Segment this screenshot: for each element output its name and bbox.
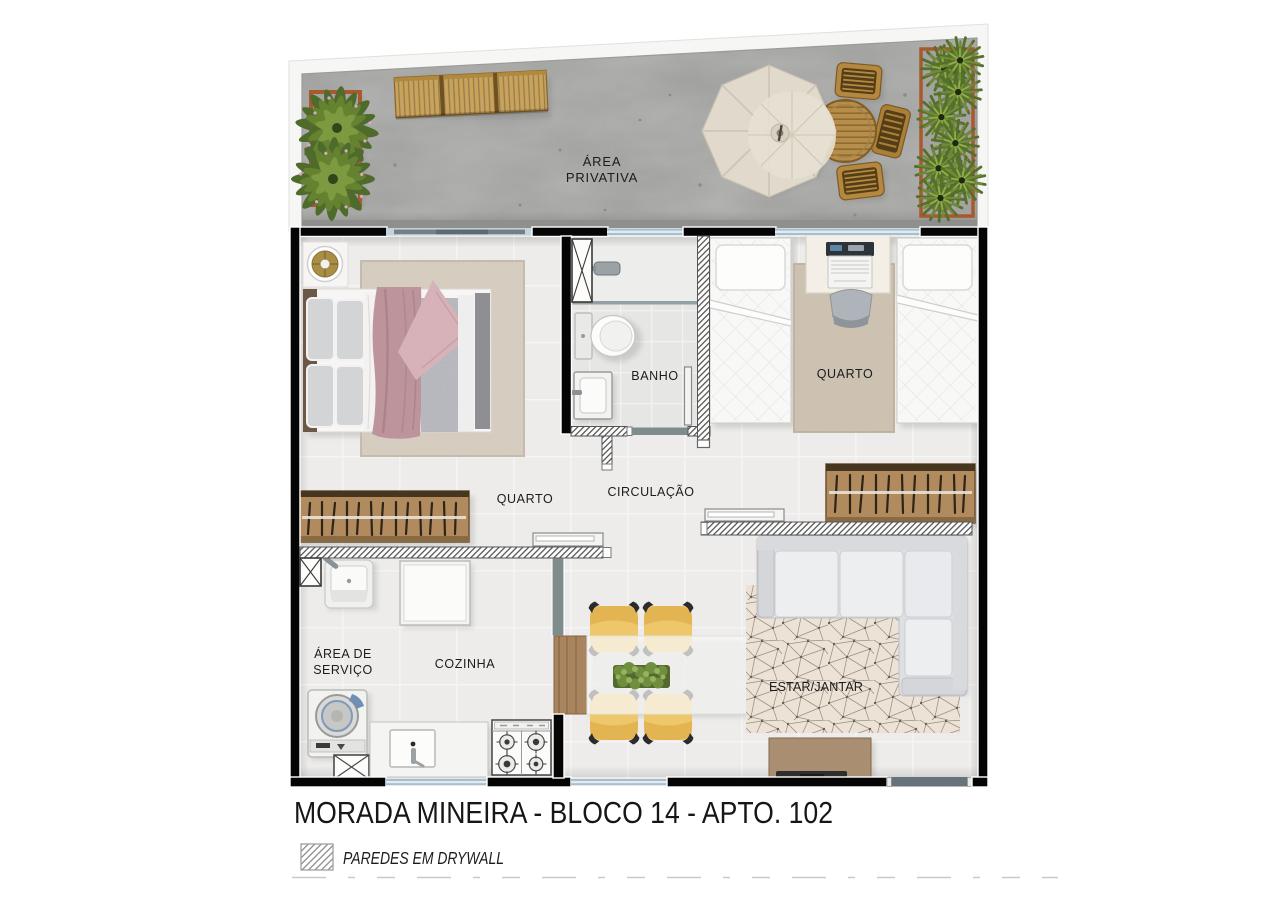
svg-text:COZINHA: COZINHA [435,657,496,671]
svg-text:QUARTO: QUARTO [497,492,554,506]
svg-text:ÁREA DE: ÁREA DE [314,646,372,661]
svg-text:SERVIÇO: SERVIÇO [313,663,373,677]
svg-text:CIRCULAÇÃO: CIRCULAÇÃO [608,485,695,499]
svg-text:BANHO: BANHO [631,369,678,383]
svg-text:ESTAR/JANTAR: ESTAR/JANTAR [769,680,863,694]
svg-text:PRIVATIVA: PRIVATIVA [566,170,638,185]
svg-text:ÁREA: ÁREA [583,154,622,169]
svg-text:PAREDES EM DRYWALL: PAREDES EM DRYWALL [343,848,504,868]
svg-text:MORADA MINEIRA - BLOCO 14 - A: MORADA MINEIRA - BLOCO 14 - APTO. 102 [294,795,833,830]
svg-text:QUARTO: QUARTO [817,367,874,381]
